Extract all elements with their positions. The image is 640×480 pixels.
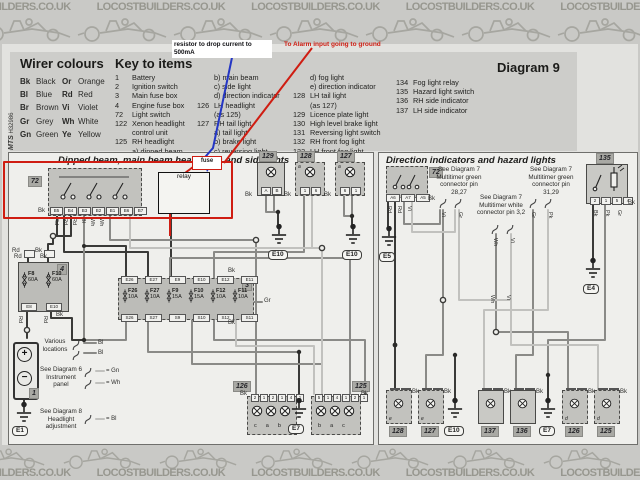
resistor-note-line2: 500mA	[174, 49, 270, 57]
lamp-icon	[251, 405, 263, 417]
lamp-icon	[343, 405, 355, 417]
pin-label: B3	[78, 207, 91, 215]
wire-label-bk: Bk	[240, 391, 247, 398]
component-1-badge: 1	[29, 388, 39, 399]
connector-tab: E8	[21, 303, 37, 311]
main-box-top-tabs: E26E27E9E10E12E11	[121, 276, 258, 284]
resistor-note-line1: resistor to drop current to	[174, 41, 270, 49]
fuse-icon	[45, 271, 52, 289]
wire-colour-label: Gr	[457, 212, 463, 218]
ground-symbol	[16, 402, 32, 424]
wire-colour-label: Rd	[71, 218, 77, 226]
connector-break-icon	[439, 198, 447, 209]
pin-label: B5	[50, 207, 63, 215]
pins	[390, 388, 411, 390]
lamp-letter: b	[318, 423, 321, 429]
connector-tab: E26	[121, 276, 138, 284]
pin-label: A7	[401, 194, 415, 202]
fuse-cell: F860A	[21, 271, 42, 289]
component-127-badge-bottom: 127	[421, 426, 439, 437]
pin-label: 1	[324, 394, 332, 402]
connector-tab: S27	[145, 314, 162, 322]
component-128-badge-bottom: 128	[389, 426, 407, 437]
wire-label-gn: = Gn	[106, 368, 119, 375]
lamp-letters-125: bac	[318, 423, 345, 429]
fuse-cell: F2610A	[122, 288, 144, 304]
fuse-icon	[21, 271, 28, 289]
lamp-letter: c	[254, 423, 257, 429]
earth-e10-badge-right: E10	[444, 426, 464, 436]
wire-colour-label: Pk	[547, 212, 553, 218]
pin-label	[566, 388, 576, 390]
relay-annotation-box: relay	[158, 172, 210, 214]
lh-tail-light-128-bottom: e	[386, 390, 412, 424]
pin-label: 1	[601, 197, 611, 205]
wire-colour-label: Vi	[406, 206, 412, 213]
fuse-annotation-box: fuse	[192, 156, 222, 170]
ground-symbol	[540, 398, 556, 420]
pin-label: B7	[134, 207, 147, 215]
watermark-text: LOCOSTBUILDERS.CO.UK	[251, 467, 380, 479]
pin-label: 2	[269, 394, 277, 402]
connector-tab: E11	[241, 276, 258, 284]
lamp-icon	[393, 398, 404, 409]
ground-symbol	[381, 226, 397, 248]
wire-colour-label: Wh	[492, 238, 498, 246]
pin-label: B2	[92, 207, 105, 215]
component-72-badge: 72	[28, 176, 42, 187]
licence-plate-light-129: AB	[257, 162, 285, 196]
wire-label-bk: Bk	[56, 312, 63, 319]
pin-label	[514, 388, 524, 390]
wire-label-bl: = Bl	[106, 416, 117, 423]
sub-letter: a	[338, 164, 341, 170]
note-multitimer-green-28-27: See Diagram 7 Multitimer green connector…	[433, 166, 485, 196]
fuse-cell: F1210A	[210, 288, 232, 304]
lamp-icon	[279, 405, 291, 417]
connector-break-icon	[72, 350, 80, 361]
switch-72-right-wire-labels: RdRdVi	[386, 206, 412, 213]
note-multitimer-white-3-2: See Diagram 7 Multitimer white connector…	[475, 194, 527, 217]
lamp-icon	[304, 166, 316, 178]
wire-label-bk: Bk	[284, 192, 291, 199]
wire-label-bk: Bk	[228, 320, 235, 327]
pin-label: 1	[351, 187, 361, 195]
component-128-badge: 128	[297, 151, 315, 162]
wire-label-wh: = Wh	[106, 380, 120, 387]
wire-label-bk: Bk	[38, 208, 45, 215]
ground-symbol	[271, 224, 287, 246]
fuse-cell: F1060A	[45, 271, 66, 289]
pin-label: 5	[612, 197, 622, 205]
note1-wire-tags: ViGr	[440, 212, 463, 218]
note-multitimer-green-31-29: See Diagram 7 Multitimer green connector…	[524, 166, 578, 196]
resistor-annotation-note: resistor to drop current to 500mA	[172, 40, 272, 58]
wire-label-bk: Bk	[628, 200, 635, 207]
connector-break-icon	[84, 414, 92, 425]
connector-break-icon	[506, 224, 514, 235]
pin-label	[525, 388, 535, 390]
connector-tab: S26	[121, 314, 138, 322]
watermark-text: LOCOSTBUILDERS.CO.UK	[0, 467, 71, 479]
lamp-letter: a	[266, 423, 269, 429]
component-137-badge: 137	[481, 426, 499, 437]
wire-label-bl: Bl	[98, 350, 103, 357]
pin-label: 1	[260, 394, 268, 402]
wire-colour-label: Pk	[604, 210, 610, 216]
wire-label-wh: Wh	[489, 295, 495, 303]
wire-colour-label: Gr	[530, 212, 536, 218]
hazard-switch-glyph	[587, 165, 625, 193]
wire-colour-label: Wh	[98, 218, 104, 226]
earth-e10-badge: E10	[342, 250, 362, 260]
pin-label: B	[272, 187, 282, 195]
pins-128: 16	[300, 187, 321, 195]
sub-letter: d	[597, 416, 600, 422]
pin-label: B4	[64, 207, 77, 215]
switch-contacts-glyph	[387, 167, 425, 191]
pins	[514, 388, 535, 390]
component-136-badge: 136	[513, 426, 531, 437]
watermark-text: LOCOSTBUILDERS.CO.UK	[97, 467, 226, 479]
fuse-cell: F1110A	[232, 288, 254, 304]
engine-box-tabs: E8E10	[21, 303, 62, 311]
pin-label: 1	[300, 187, 310, 195]
switch-72-wire-labels: RdRdRdBlWhWh	[53, 218, 104, 226]
pin-label	[433, 388, 443, 390]
connector-tab: S11	[241, 314, 258, 322]
pins	[482, 388, 503, 390]
wire-colour-label: Bl	[80, 218, 86, 226]
connector-tab: S9	[169, 314, 186, 322]
wire-colour-label: Gr	[616, 210, 622, 216]
rh-side-indicator-136	[510, 390, 536, 424]
earth-e5-badge: E5	[379, 252, 395, 262]
fuse-cell: F2710A	[144, 288, 166, 304]
pin-label: 1	[342, 394, 350, 402]
connector-break-icon	[84, 379, 92, 390]
wire-label-bk: Bk	[40, 254, 47, 261]
wire-label-bl: Bl	[98, 340, 103, 347]
battery-negative-terminal: −	[17, 371, 32, 386]
pins-135: 2154	[590, 197, 633, 205]
lh-tail-light-128: a 16	[295, 162, 325, 196]
pin-label	[609, 388, 619, 390]
connector-pin	[24, 250, 35, 258]
note-see-diagram-8: See Diagram 8 Headlight adjustment	[38, 408, 84, 431]
component-129-badge: 129	[259, 151, 277, 162]
battery-positive-terminal: +	[17, 347, 32, 362]
rh-tail-light-127: a 61	[335, 162, 365, 196]
fuse-cell: F915A	[166, 288, 188, 304]
connector-break-icon	[544, 198, 552, 209]
main-box-bottom-tabs: S26S27S9S10S12S11	[121, 314, 258, 322]
lamp-icon	[344, 166, 356, 178]
connector-tab: E10	[46, 303, 62, 311]
earth-e4-badge: E4	[583, 284, 599, 294]
pins	[598, 388, 619, 390]
pin-label: B6	[120, 207, 133, 215]
lamp-icon	[485, 398, 496, 409]
ground-symbol	[585, 258, 601, 280]
pin-label: 6	[340, 187, 350, 195]
ground-symbol	[291, 398, 307, 420]
wire-colour-label: Wh	[89, 218, 95, 226]
wire-colour-label: Bk	[592, 210, 598, 216]
earth-e10-badge: E10	[268, 250, 288, 260]
switch-contacts-glyph	[49, 169, 139, 205]
wire-label-bk: Bk	[620, 389, 627, 396]
connector-break-icon	[529, 198, 537, 209]
wire-colour-label: Rd	[386, 206, 392, 213]
pins	[422, 388, 443, 390]
wire-label-bk: Bk	[444, 389, 451, 396]
pin-label	[401, 388, 411, 390]
earth-e1-badge: E1	[12, 426, 28, 436]
lamp-icon	[329, 405, 341, 417]
pin-label: A6	[386, 194, 400, 202]
pin-label	[482, 388, 492, 390]
pin-label	[598, 388, 608, 390]
wire-colour-label: Rd	[17, 316, 23, 323]
lamp-letter: b	[278, 423, 281, 429]
wire-colour-label: Rd	[53, 218, 59, 226]
rh-tail-light-127-bottom: e	[418, 390, 444, 424]
pins-127: 61	[340, 187, 361, 195]
pins	[566, 388, 587, 390]
lamp-letter: a	[330, 423, 333, 429]
wire-colour-label: Rd	[42, 316, 48, 323]
main-fuse-box-3: 3 E26E27E9E10E12E11 F2610A F2710A F915A	[118, 278, 254, 320]
lamp-icon	[315, 405, 327, 417]
wire-label-bk: Bk	[428, 196, 435, 203]
pin-label: 2	[251, 394, 259, 402]
pin-label: 4	[333, 394, 341, 402]
lamp-icon	[601, 398, 612, 409]
wire-label-gr: Gr	[264, 298, 271, 305]
pins-129: AB	[261, 187, 282, 195]
lamp-icon	[265, 166, 277, 178]
component-126-badge-bottom: 126	[565, 426, 583, 437]
switch-72-pin-row: B5B4B3B2B1B6B7	[50, 207, 147, 215]
wire-label-bk: Bk	[228, 268, 235, 275]
scanned-wiring-diagram-page: LOCOSTBUILDERS.CO.UKLOCOSTBUILDERS.CO.UK…	[0, 0, 640, 480]
wire-label-bk: Bk	[536, 389, 543, 396]
pin-label	[493, 388, 503, 390]
pin-label	[577, 388, 587, 390]
lamp-letters-126: cab	[254, 423, 281, 429]
wire-label-vi: Vi	[505, 295, 511, 300]
wire-colour-label: Vi	[509, 238, 515, 246]
note2-wire-tags: WhVi	[492, 238, 515, 246]
connector-tab: E12	[217, 276, 234, 284]
wire-label-bk: Bk	[245, 192, 252, 199]
pin-label: 5	[315, 394, 323, 402]
pin-label: 2	[590, 197, 600, 205]
note-see-diagram-6: See Diagram 6 Instrument panel	[40, 366, 82, 389]
wire-colour-label: Rd	[396, 206, 402, 213]
fuse-cell: F1015A	[188, 288, 210, 304]
lamp-icon	[425, 398, 436, 409]
watermark-banner-bottom-text: LOCOSTBUILDERS.CO.UKLOCOSTBUILDERS.CO.UK…	[0, 467, 640, 479]
earth-e7-badge: E7	[288, 424, 304, 434]
lamp-icon	[265, 405, 277, 417]
ground-symbol	[447, 398, 463, 420]
component-125-badge-bottom: 125	[597, 426, 615, 437]
wire-label-rd: Rd	[14, 254, 22, 261]
sub-letter: e	[389, 416, 392, 422]
note3-wire-tags: GrPk	[530, 212, 553, 218]
wire-colour-label: Rd	[62, 218, 68, 226]
pin-label	[390, 388, 400, 390]
wire-label-bk: Bk	[324, 192, 331, 199]
sub-letter: a	[298, 164, 301, 170]
pin-label: A	[261, 187, 271, 195]
connector-break-icon	[491, 224, 499, 235]
connector-tab: E27	[145, 276, 162, 284]
watermark-text: LOCOSTBUILDERS.CO.UK	[560, 467, 640, 479]
earth-e7-badge-right: E7	[539, 426, 555, 436]
ground-symbol	[345, 224, 361, 246]
lamp-icon	[569, 398, 580, 409]
connector-break-icon	[454, 198, 462, 209]
sub-letter: e	[421, 416, 424, 422]
wire-label-bk: Bk	[361, 391, 368, 398]
pin-label	[422, 388, 432, 390]
lamp-icon	[517, 398, 528, 409]
pin-label: 6	[311, 187, 321, 195]
main-fuse-list: F2610A F2710A F915A F1015A	[122, 288, 254, 304]
lh-side-indicator-137	[478, 390, 504, 424]
switch-72-right-pins: A6A7A5	[386, 194, 430, 202]
pin-label: B1	[106, 207, 119, 215]
engine-fuse-box-4: 4 F860A F1060A E8E10	[18, 262, 69, 312]
pin-label: 2	[351, 394, 359, 402]
connector-tab: E9	[169, 276, 186, 284]
connector-break-icon	[84, 367, 92, 378]
sub-letter: d	[565, 416, 568, 422]
hazard-wire-labels: BkPkGr	[592, 210, 622, 216]
lh-headlight-126-bottom: d	[562, 390, 588, 424]
lamp-letter: c	[342, 423, 345, 429]
note-various-locations: Various locations	[40, 338, 70, 353]
wire-colour-label: Vi	[440, 212, 446, 218]
watermark-text: LOCOSTBUILDERS.CO.UK	[406, 467, 535, 479]
rh-headlight-125: 514121 bac	[311, 396, 361, 435]
component-127-badge: 127	[337, 151, 355, 162]
hazard-switch-135: 2154	[586, 164, 628, 204]
engine-fuse-list: F860A F1060A	[21, 271, 66, 289]
rh-headlight-125-bottom: d	[594, 390, 620, 424]
connector-tab: E10	[193, 276, 210, 284]
relay-label: relay	[177, 173, 191, 180]
pin-label: 1	[278, 394, 286, 402]
component-135-badge: 135	[596, 153, 614, 164]
connector-tab: S10	[193, 314, 210, 322]
alarm-annotation-note: To Alarm input going to ground	[284, 41, 381, 48]
